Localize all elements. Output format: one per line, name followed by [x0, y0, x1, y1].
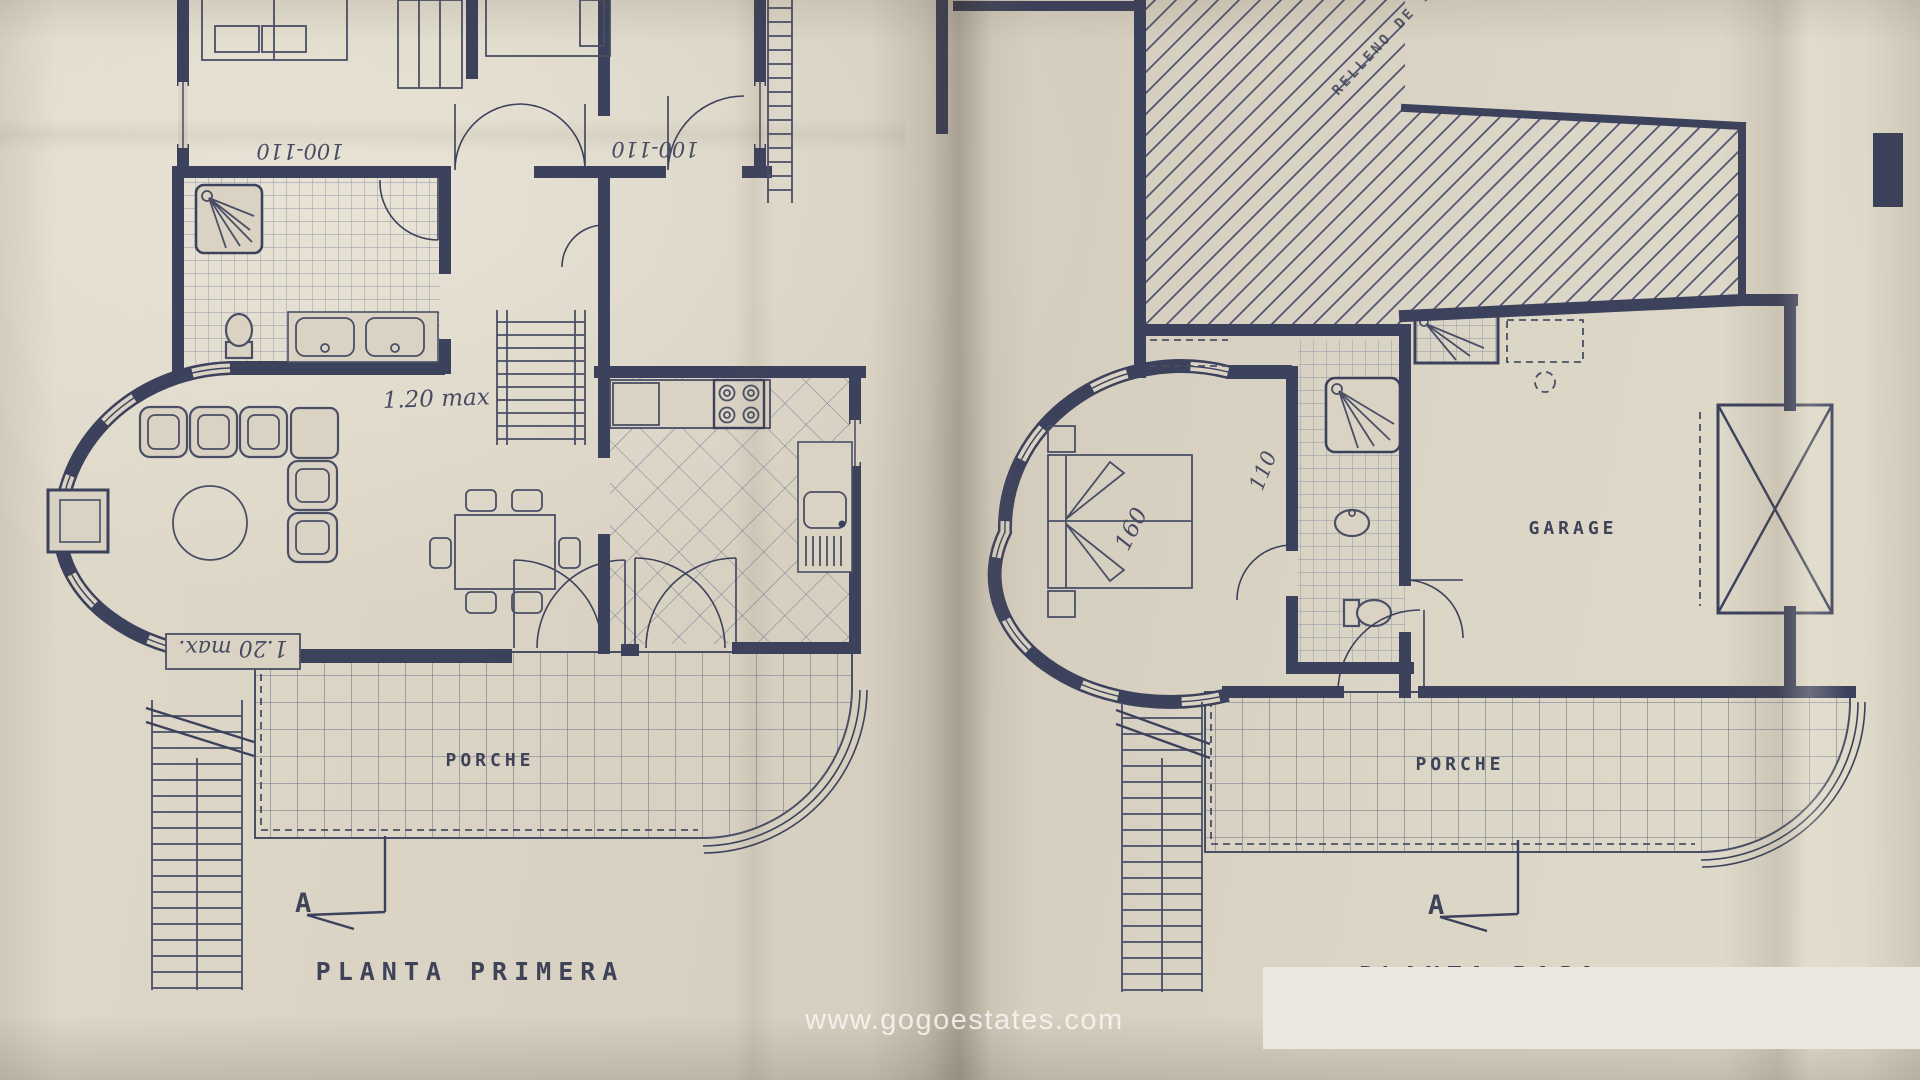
- sink-icon: [1335, 510, 1369, 536]
- sofa-icon: [140, 407, 338, 562]
- sink-icon: [288, 312, 438, 362]
- section-marker-a: A: [1428, 840, 1518, 931]
- section-letter: A: [1428, 890, 1444, 921]
- porch-floor: [255, 652, 852, 838]
- porch-label: PORCHE: [1415, 754, 1504, 775]
- shower-icon: [1326, 378, 1400, 452]
- stove-icon: [714, 380, 764, 428]
- earth-fill-hatch: [1405, 108, 1742, 316]
- floor-plan-right: RELLENO DE TIERRA: [995, 0, 1888, 992]
- utility-cell: [1415, 314, 1583, 392]
- floor-plan-drawing: 1.20 max. 1.20 max 100-110 100-110 PORCH…: [0, 0, 1920, 1080]
- bath-dim-label: 110: [1244, 448, 1281, 494]
- blueprint-scan: 1.20 max. 1.20 max 100-110 100-110 PORCH…: [0, 0, 1920, 1080]
- living-room-note: 1.20 max.: [166, 634, 300, 669]
- overlay-box: [1263, 967, 1920, 1049]
- garage-door-icon: [1700, 405, 1832, 613]
- section-letter: A: [295, 888, 311, 919]
- toilet-icon: [226, 314, 252, 358]
- kitchen-sink-icon: [798, 442, 852, 572]
- dining-table-icon: [430, 490, 580, 613]
- shower-icon: [196, 185, 262, 253]
- porch-floor: [1205, 692, 1850, 852]
- bed-dim-label: 160: [1110, 504, 1153, 555]
- round-table-icon: [173, 486, 247, 560]
- exterior-staircase: [146, 700, 254, 990]
- floor-plan-left: 1.20 max. 1.20 max 100-110 100-110 PORCH…: [48, 0, 1133, 990]
- fireplace-icon: [48, 490, 108, 552]
- plan-left-title: PLANTA PRIMERA: [316, 957, 625, 986]
- room-dim-label: 100-110: [256, 139, 343, 163]
- staircase: [497, 310, 585, 445]
- stairs-note-text: 1.20 max: [382, 384, 490, 414]
- toilet-icon: [1344, 600, 1391, 626]
- bed-icon: [486, 0, 610, 56]
- living-note-text: 1.20 max.: [178, 635, 287, 660]
- watermark-text: www.gogoestates.com: [805, 1004, 1125, 1037]
- wardrobe-icon: [398, 0, 462, 88]
- room-dim-label: 100-110: [611, 137, 698, 161]
- section-marker-a: A: [295, 836, 385, 929]
- porch-label: PORCHE: [445, 750, 534, 771]
- bed-icon: [202, 0, 347, 60]
- exterior-staircase: [1116, 702, 1210, 992]
- garage-label: GARAGE: [1528, 518, 1617, 539]
